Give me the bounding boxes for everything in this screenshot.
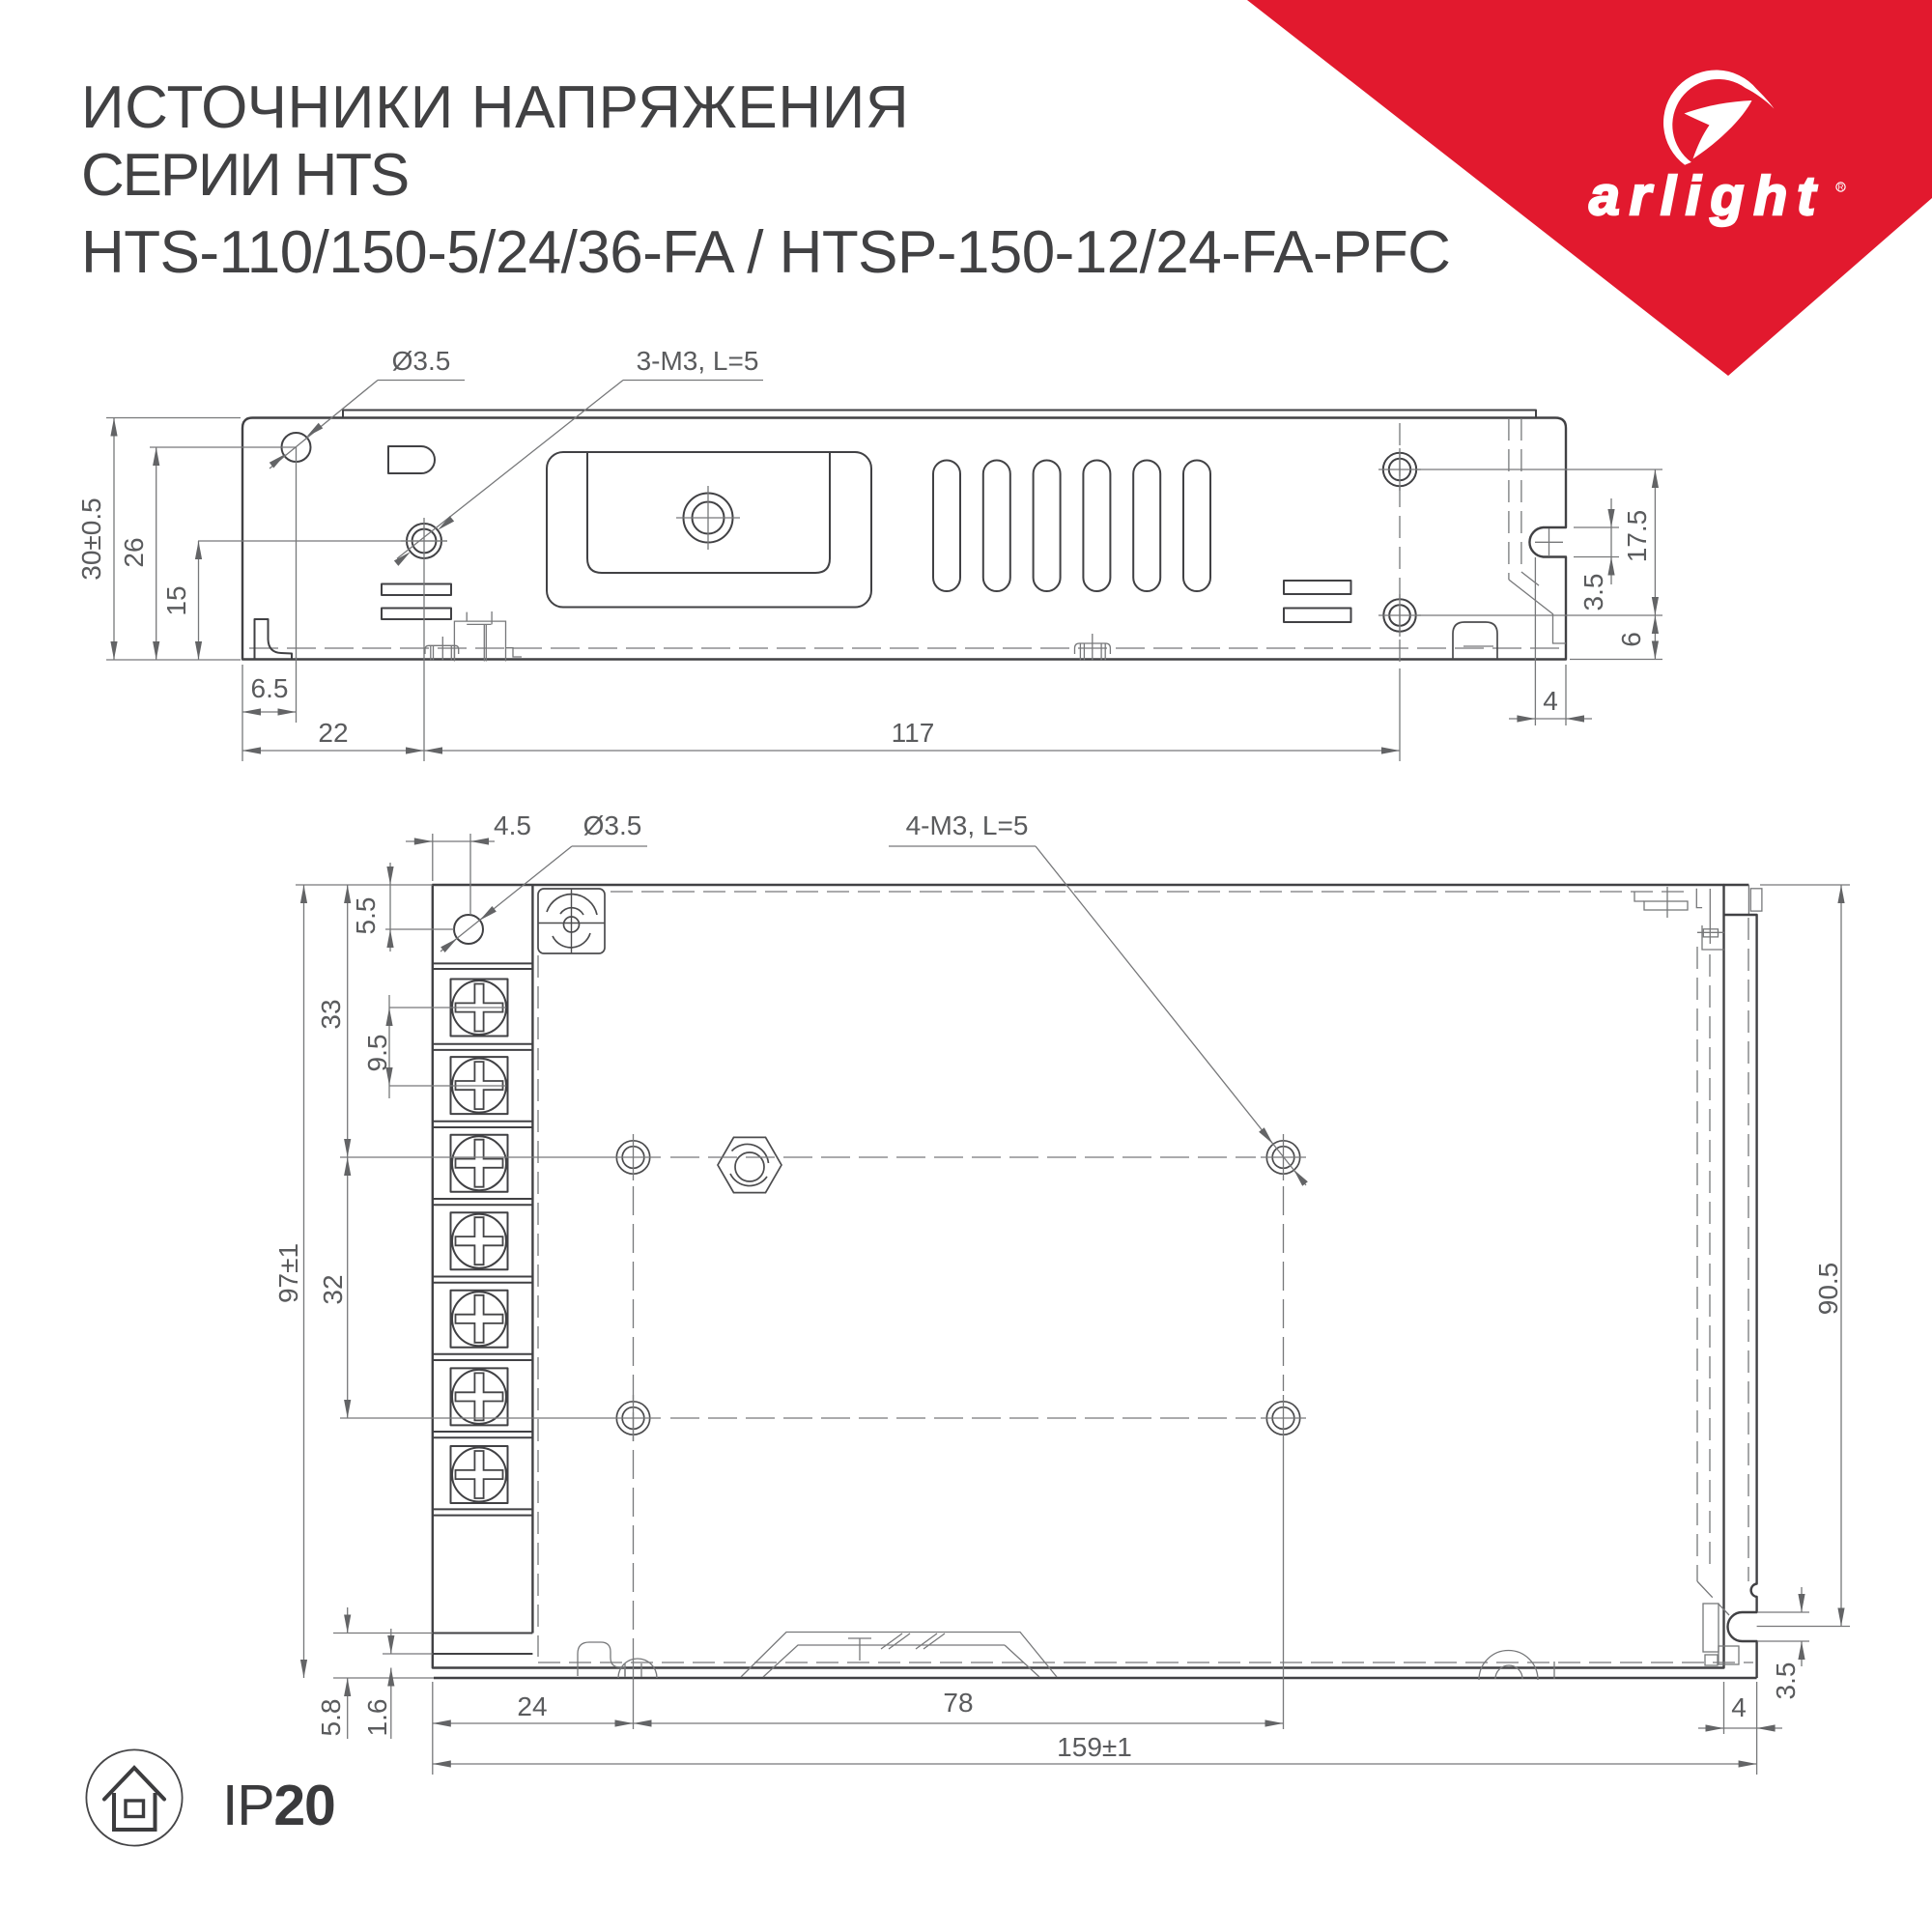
svg-text:17.5: 17.5 [1622,510,1652,563]
svg-text:30±0.5: 30±0.5 [76,497,106,580]
svg-text:3-M3, L=5: 3-M3, L=5 [637,346,759,376]
svg-text:117: 117 [892,718,935,748]
svg-text:СЕРИИ HTS: СЕРИИ HTS [81,142,408,209]
svg-text:1.6: 1.6 [362,1699,392,1737]
svg-text:Ø3.5: Ø3.5 [583,810,642,840]
svg-text:159±1: 159±1 [1057,1732,1132,1762]
svg-text:90.5: 90.5 [1813,1263,1843,1316]
svg-text:3.5: 3.5 [1771,1662,1801,1700]
svg-text:arlight: arlight [1589,165,1825,227]
svg-text:R: R [1838,184,1844,192]
svg-text:9.5: 9.5 [362,1035,392,1072]
svg-text:32: 32 [318,1274,348,1304]
svg-text:IP20: IP20 [222,1774,335,1837]
svg-text:4: 4 [1731,1692,1747,1722]
svg-text:HTS-110/150-5/24/36-FA / HTSP-: HTS-110/150-5/24/36-FA / HTSP-150-12/24-… [81,219,1450,286]
svg-text:3.5: 3.5 [1578,574,1608,611]
svg-text:22: 22 [318,718,348,748]
svg-text:5.5: 5.5 [351,897,381,935]
svg-text:5.8: 5.8 [316,1699,346,1737]
svg-text:4: 4 [1543,686,1558,716]
svg-text:33: 33 [316,999,346,1029]
svg-text:24: 24 [517,1691,547,1721]
svg-text:15: 15 [161,585,191,615]
svg-text:Ø3.5: Ø3.5 [392,346,451,376]
svg-text:6.5: 6.5 [251,673,289,703]
svg-text:97±1: 97±1 [273,1243,303,1303]
svg-text:26: 26 [119,537,149,567]
svg-text:78: 78 [943,1688,973,1718]
svg-text:6: 6 [1616,632,1646,647]
svg-text:4-M3, L=5: 4-M3, L=5 [906,810,1029,840]
svg-text:ИСТОЧНИКИ НАПРЯЖЕНИЯ: ИСТОЧНИКИ НАПРЯЖЕНИЯ [81,74,909,141]
svg-text:4.5: 4.5 [494,810,531,840]
